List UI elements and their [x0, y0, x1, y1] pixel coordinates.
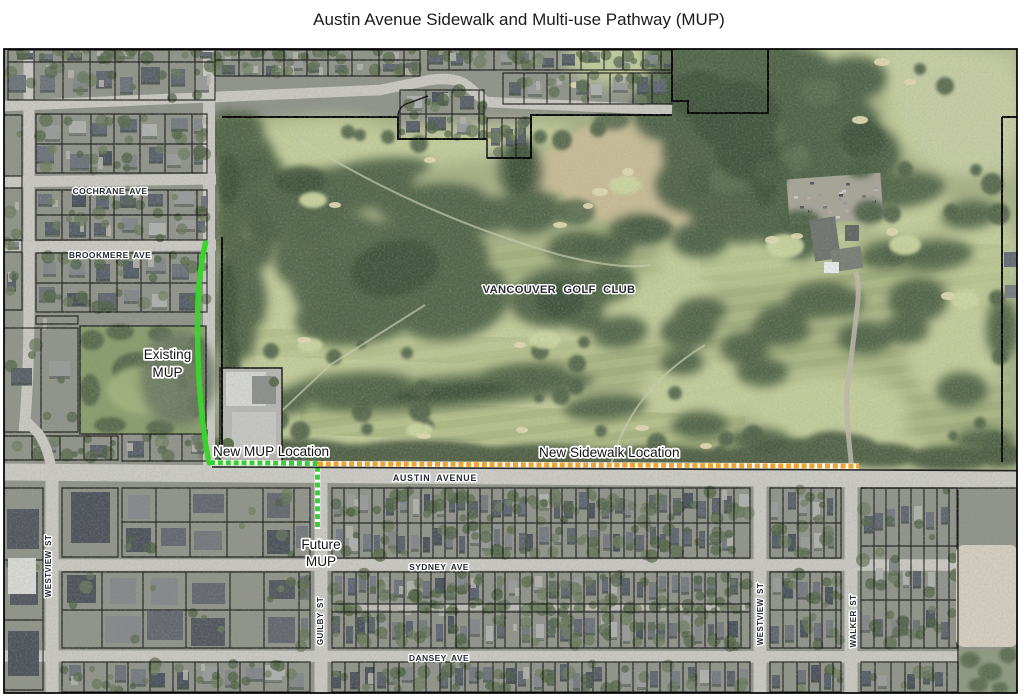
svg-text:WESTVIEW ST: WESTVIEW ST [756, 583, 765, 645]
svg-text:Existing: Existing [144, 347, 192, 362]
svg-text:SYDNEY AVE: SYDNEY AVE [409, 562, 469, 572]
svg-text:Future: Future [301, 537, 340, 552]
svg-text:BROOKMERE AVE: BROOKMERE AVE [69, 250, 151, 260]
svg-text:DANSEY AVE: DANSEY AVE [409, 653, 469, 663]
svg-text:MUP: MUP [306, 554, 336, 569]
svg-text:Austin Avenue Sidewalk and Mul: Austin Avenue Sidewalk and Multi-use Pat… [313, 10, 725, 29]
svg-text:COCHRANE AVE: COCHRANE AVE [73, 186, 148, 196]
svg-text:WESTVIEW ST: WESTVIEW ST [44, 535, 53, 597]
svg-text:MUP: MUP [152, 365, 182, 380]
svg-text:VANCOUVER GOLF CLUB: VANCOUVER GOLF CLUB [483, 284, 636, 296]
svg-text:WALKER ST: WALKER ST [849, 595, 858, 648]
svg-text:AUSTIN AVENUE: AUSTIN AVENUE [393, 473, 477, 483]
svg-text:New Sidewalk Location: New Sidewalk Location [539, 445, 680, 460]
svg-text:New MUP Location: New MUP Location [213, 444, 329, 459]
svg-text:GUILBY ST: GUILBY ST [316, 597, 325, 645]
